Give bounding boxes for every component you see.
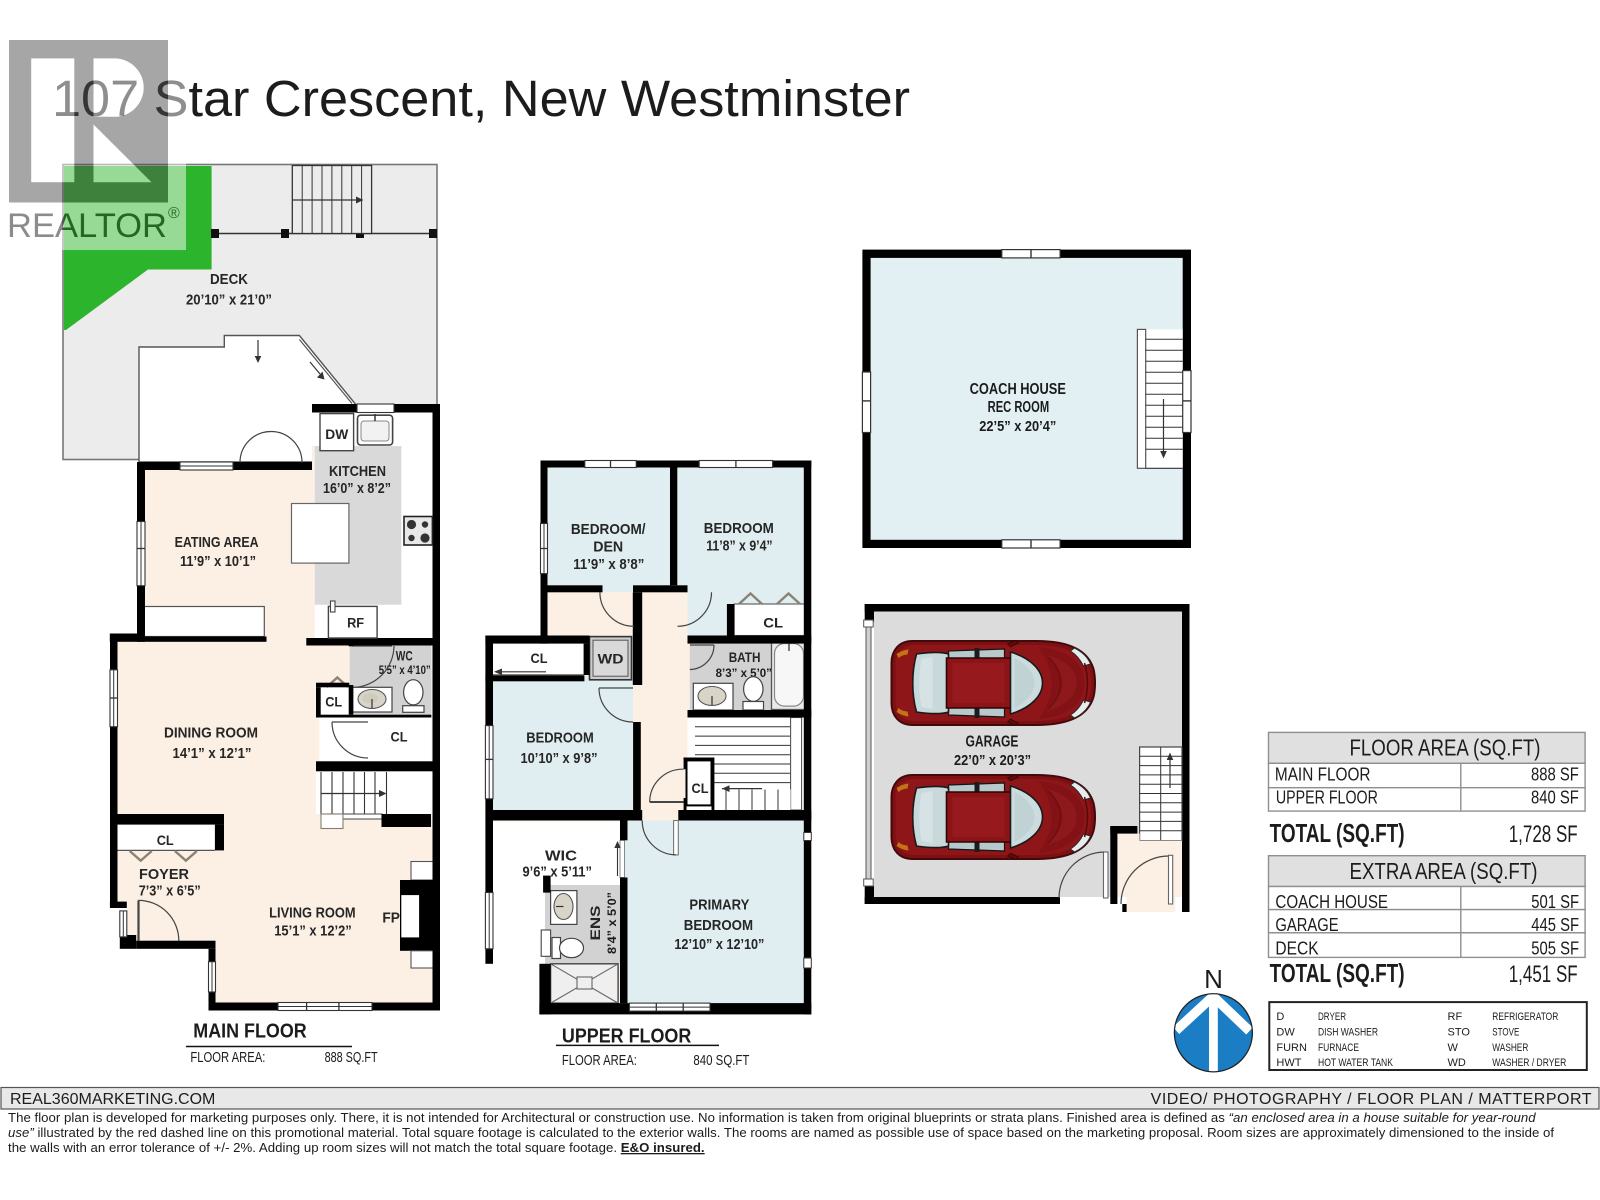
svg-text:505 SF: 505 SF xyxy=(1531,938,1579,958)
svg-text:BATH: BATH xyxy=(729,650,761,665)
svg-text:W: W xyxy=(1448,1042,1459,1054)
svg-text:WASHER / DRYER: WASHER / DRYER xyxy=(1492,1057,1566,1069)
svg-text:DECK: DECK xyxy=(1275,938,1318,958)
svg-text:REC ROOM: REC ROOM xyxy=(988,399,1050,416)
svg-text:The floor plan is developed fo: The floor plan is developed for marketin… xyxy=(8,1110,1536,1125)
svg-text:MAIN FLOOR: MAIN FLOOR xyxy=(1275,764,1371,784)
svg-text:EATING AREA: EATING AREA xyxy=(175,534,259,551)
svg-text:STO: STO xyxy=(1448,1027,1471,1039)
svg-text:DISH WASHER: DISH WASHER xyxy=(1318,1027,1378,1039)
svg-text:EXTRA AREA (SQ.FT): EXTRA AREA (SQ.FT) xyxy=(1350,858,1538,884)
svg-text:11’8” x 9’4”: 11’8” x 9’4” xyxy=(706,537,772,554)
svg-text:VIDEO/ PHOTOGRAPHY / FLOOR PLA: VIDEO/ PHOTOGRAPHY / FLOOR PLAN / MATTER… xyxy=(1151,1091,1592,1108)
svg-text:1,728 SF: 1,728 SF xyxy=(1509,821,1578,848)
svg-text:REFRIGERATOR: REFRIGERATOR xyxy=(1492,1011,1558,1023)
svg-text:FURNACE: FURNACE xyxy=(1318,1042,1359,1054)
svg-text:TOTAL (SQ.FT): TOTAL (SQ.FT) xyxy=(1270,818,1405,848)
svg-text:10’10” x 9’8”: 10’10” x 9’8” xyxy=(521,750,598,767)
svg-text:COACH HOUSE: COACH HOUSE xyxy=(1275,892,1388,912)
svg-text:888 SQ.FT: 888 SQ.FT xyxy=(325,1050,378,1066)
svg-text:22’5” x 20’4”: 22’5” x 20’4” xyxy=(979,418,1056,435)
svg-text:GARAGE: GARAGE xyxy=(966,733,1019,750)
svg-text:CL: CL xyxy=(692,781,709,796)
svg-text:GARAGE: GARAGE xyxy=(1275,915,1338,935)
svg-text:DECK: DECK xyxy=(210,271,248,288)
svg-text:DW: DW xyxy=(1276,1027,1295,1039)
svg-text:WD: WD xyxy=(1448,1057,1466,1069)
svg-text:8’4” x 5’0”: 8’4” x 5’0” xyxy=(605,892,619,954)
svg-text:DRYER: DRYER xyxy=(1318,1011,1346,1023)
svg-text:WD: WD xyxy=(598,652,624,667)
svg-text:8’3” x 5’0”: 8’3” x 5’0” xyxy=(716,666,772,680)
svg-text:PRIMARY: PRIMARY xyxy=(689,896,749,913)
svg-text:1,451 SF: 1,451 SF xyxy=(1509,961,1578,988)
svg-text:7’3” x 6’5”: 7’3” x 6’5” xyxy=(139,883,201,900)
svg-text:DEN: DEN xyxy=(593,539,623,556)
svg-text:15’1” x 12’2”: 15’1” x 12’2” xyxy=(274,923,352,940)
svg-text:KITCHEN: KITCHEN xyxy=(329,463,386,480)
svg-text:HOT WATER TANK: HOT WATER TANK xyxy=(1318,1057,1394,1069)
svg-text:FP: FP xyxy=(382,910,400,927)
svg-text:12’10” x 12’10”: 12’10” x 12’10” xyxy=(674,936,764,953)
svg-text:REAL360MARKETING.COM: REAL360MARKETING.COM xyxy=(10,1091,215,1108)
svg-text:HWT: HWT xyxy=(1276,1057,1301,1069)
svg-text:CL: CL xyxy=(325,695,342,710)
svg-text:445 SF: 445 SF xyxy=(1531,915,1579,935)
svg-text:UPPER FLOOR: UPPER FLOOR xyxy=(562,1026,692,1048)
svg-text:the walls with an error tolera: the walls with an error tolerance of +/-… xyxy=(8,1140,705,1155)
svg-text:FLOOR AREA (SQ.FT): FLOOR AREA (SQ.FT) xyxy=(1350,735,1541,761)
svg-text:DW: DW xyxy=(325,427,348,442)
svg-text:COACH HOUSE: COACH HOUSE xyxy=(970,381,1066,398)
svg-text:MAIN FLOOR: MAIN FLOOR xyxy=(193,1021,307,1043)
svg-text:WC: WC xyxy=(396,649,413,664)
svg-text:BEDROOM: BEDROOM xyxy=(684,917,753,934)
svg-text:CL: CL xyxy=(391,729,408,744)
svg-text:RF: RF xyxy=(347,616,364,631)
svg-text:FOYER: FOYER xyxy=(139,866,189,883)
svg-text:ENS: ENS xyxy=(588,906,603,941)
svg-text:DINING ROOM: DINING ROOM xyxy=(164,725,258,742)
svg-text:888 SF: 888 SF xyxy=(1531,764,1579,784)
svg-text:D: D xyxy=(1276,1011,1284,1023)
svg-text:840 SQ.FT: 840 SQ.FT xyxy=(693,1053,749,1069)
svg-text:CL: CL xyxy=(763,615,783,630)
svg-text:REALTOR: REALTOR xyxy=(7,207,167,245)
svg-text:WASHER: WASHER xyxy=(1492,1042,1528,1054)
svg-text:501 SF: 501 SF xyxy=(1531,892,1579,912)
svg-text:UPPER FLOOR: UPPER FLOOR xyxy=(1276,788,1378,808)
svg-text:BEDROOM: BEDROOM xyxy=(526,730,594,747)
svg-text:14’1” x 12’1”: 14’1” x 12’1” xyxy=(173,745,252,762)
svg-text:CL: CL xyxy=(157,833,174,848)
svg-text:LIVING ROOM: LIVING ROOM xyxy=(269,905,356,922)
svg-text:FLOOR AREA:: FLOOR AREA: xyxy=(190,1050,265,1066)
svg-text:11’9” x 10’1”: 11’9” x 10’1” xyxy=(180,553,256,570)
svg-text:FURN: FURN xyxy=(1276,1042,1307,1054)
svg-text:CL: CL xyxy=(531,651,548,666)
svg-text:TOTAL (SQ.FT): TOTAL (SQ.FT) xyxy=(1270,958,1405,988)
svg-text:840 SF: 840 SF xyxy=(1531,788,1579,808)
svg-text:BEDROOM/: BEDROOM/ xyxy=(571,521,646,538)
svg-text:FLOOR AREA:: FLOOR AREA: xyxy=(562,1053,637,1069)
svg-text:®: ® xyxy=(168,205,180,222)
svg-text:20’10” x 21’0”: 20’10” x 21’0” xyxy=(186,292,272,309)
svg-text:N: N xyxy=(1204,964,1223,994)
svg-text:11’9” x 8’8”: 11’9” x 8’8” xyxy=(573,556,644,573)
svg-text:BEDROOM: BEDROOM xyxy=(704,520,774,537)
svg-text:STOVE: STOVE xyxy=(1492,1027,1519,1039)
svg-text:9’6” x 5’11”: 9’6” x 5’11” xyxy=(523,864,592,881)
svg-text:WIC: WIC xyxy=(545,848,577,865)
svg-text:22’0” x 20’3”: 22’0” x 20’3” xyxy=(954,752,1031,769)
svg-text:use” illustrated by the red da: use” illustrated by the red dashed line … xyxy=(8,1125,1554,1140)
svg-text:16’0” x 8’2”: 16’0” x 8’2” xyxy=(323,480,391,497)
svg-text:RF: RF xyxy=(1448,1011,1463,1023)
